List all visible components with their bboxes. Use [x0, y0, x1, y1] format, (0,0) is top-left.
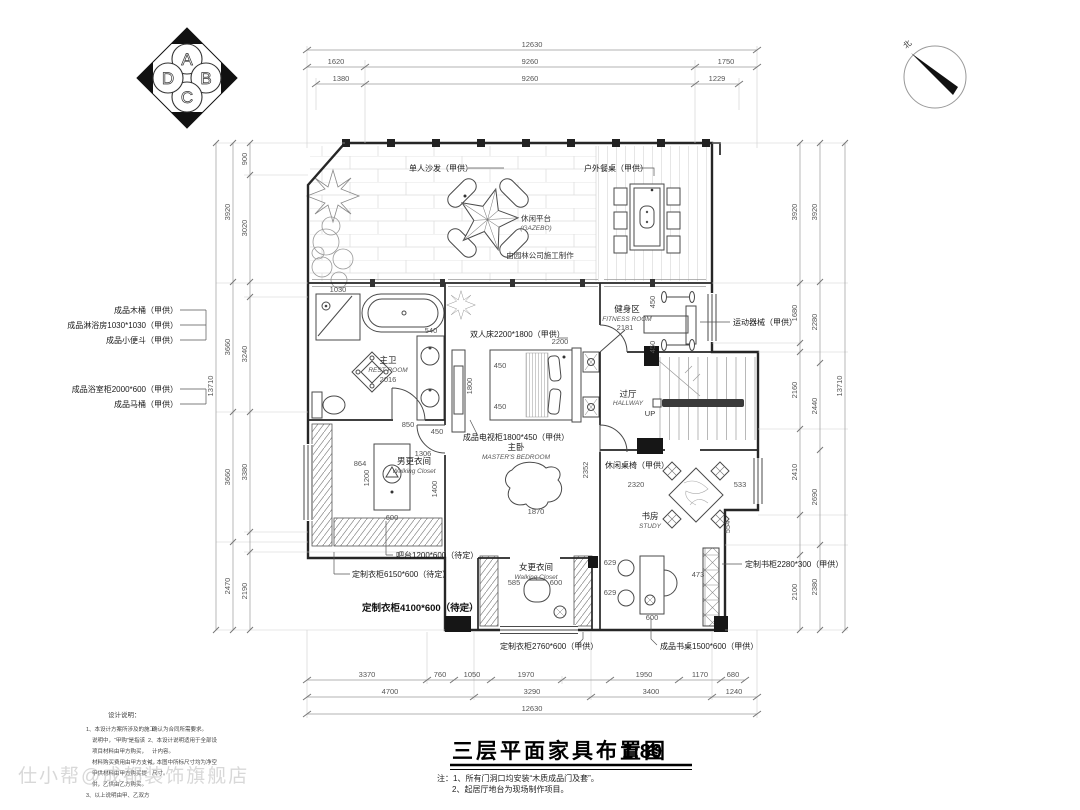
- dim-text: 629: [604, 588, 617, 597]
- dim-text: 3400: [643, 687, 660, 696]
- dim-text: 1200: [362, 470, 371, 487]
- desk-chair: [664, 570, 677, 596]
- bathroom-fixtures: [312, 294, 444, 420]
- dim-text: 3660: [223, 469, 232, 486]
- label-equipment: 运动器械（甲供）: [733, 317, 797, 327]
- dim-text: 864: [354, 459, 367, 468]
- dim-text: 3370: [359, 670, 376, 679]
- room-closet-f-en: Walking Closet: [514, 574, 558, 581]
- dim-text: 2100: [790, 584, 799, 601]
- logo-letter-d: D: [162, 69, 174, 88]
- dim-text: 3290: [524, 687, 541, 696]
- dim-text: 2160: [790, 382, 799, 399]
- room-closet-f: 女更衣间: [519, 562, 553, 572]
- design-notes-line: 3、以上说明由甲、乙双方: [86, 791, 150, 799]
- callout-shower: 成品淋浴房1030*1030（甲供）: [67, 320, 178, 330]
- dim-text: 1970: [518, 670, 535, 679]
- callout-urinal: 成品小便斗（甲供）: [106, 335, 178, 345]
- dim-text: 1620: [328, 57, 345, 66]
- callout-vanity: 成品浴室柜2000*600（甲供）: [72, 384, 178, 394]
- dim-text: 13710: [206, 376, 215, 397]
- drawing-note-2: 2、起居厅地台为现场制作项目。: [452, 784, 568, 794]
- dim-text: 2690: [810, 489, 819, 506]
- dim-text: 450: [494, 361, 507, 370]
- stair-handrail: [662, 399, 744, 407]
- dim-text: 1050: [464, 670, 481, 679]
- dim-text: 450: [431, 427, 444, 436]
- design-notes-line: 计内容。: [152, 747, 174, 755]
- dim-text: 1870: [528, 507, 545, 516]
- dim-text: 1800: [465, 378, 474, 395]
- compass-north-label: 北: [902, 38, 914, 50]
- dim-text: 629: [604, 558, 617, 567]
- dim-text: 850: [402, 420, 415, 429]
- dim-text: 12630: [522, 40, 543, 49]
- room-bath-en: REST ROOM: [368, 367, 408, 374]
- dim-text: 600: [386, 513, 399, 522]
- dim-text: 2380: [810, 579, 819, 596]
- callout-wood-tub: 成品木桶（甲供）: [114, 305, 178, 315]
- label-bed: 双人床2200*1800（甲供）: [470, 329, 565, 339]
- drawing-scale: 1:80: [622, 741, 662, 763]
- label-up: UP: [645, 409, 655, 418]
- dim-text: 13710: [835, 376, 844, 397]
- room-master: 主卧: [507, 442, 525, 452]
- dressing-chair: [524, 578, 550, 602]
- dim-text: 760: [434, 670, 447, 679]
- dim-text: 2280: [810, 314, 819, 331]
- logo-letter-c: C: [181, 88, 193, 107]
- label-leisure-set: 休闲桌椅（甲供）: [605, 460, 669, 470]
- dim-text: 1229: [709, 74, 726, 83]
- dim-text: 2320: [628, 480, 645, 489]
- dim-text: 2016: [380, 375, 397, 384]
- dim-text: 3240: [240, 346, 249, 363]
- stool: [618, 560, 634, 576]
- callout-toilet: 成品马桶（甲供）: [114, 399, 178, 409]
- dim-text: 450: [648, 296, 657, 309]
- dim-text: 3920: [810, 204, 819, 221]
- dim-text: 2440: [810, 398, 819, 415]
- design-notes-line: 1、本设计方案所涉及的施工: [86, 725, 156, 733]
- chaise-lounge: [506, 462, 562, 509]
- room-study-en: STUDY: [639, 523, 662, 530]
- dim-text: 3660: [223, 339, 232, 356]
- dim-text: 450: [648, 341, 657, 354]
- design-notes-title: 设计说明：: [108, 710, 141, 719]
- room-gazebo: 休闲平台: [521, 213, 551, 223]
- staircase: [653, 357, 755, 440]
- design-notes-line: 确认为合同所需要求。: [152, 725, 207, 733]
- dim-text: 680: [727, 670, 740, 679]
- bookcase: [703, 548, 719, 626]
- dim-text: 3020: [240, 220, 249, 237]
- callout-wardrobe-6150: 定制衣柜6150*600（待定）: [352, 569, 450, 579]
- callout-wardrobe-2760: 定制衣柜2760*600（甲供）: [500, 641, 598, 651]
- label-landscape-note: 由园林公司施工制作: [506, 250, 574, 260]
- label-sofa: 单人沙发（甲供）: [409, 163, 473, 173]
- dim-text: 1950: [636, 670, 653, 679]
- callout-wardrobe-4100: 定制衣柜4100*600（待定）: [361, 602, 479, 614]
- room-hall: 过厅: [619, 389, 637, 399]
- room-study: 书房: [641, 511, 658, 521]
- dim-text: 1380: [333, 74, 350, 83]
- dim-text: 9260: [522, 57, 539, 66]
- watermark: 仕小帮@成都装饰旗舰店: [18, 765, 249, 787]
- dim-text: 1750: [718, 57, 735, 66]
- firm-logo: A B C D: [137, 28, 237, 128]
- callout-bar: 吧台1200*600（待定）: [396, 550, 478, 560]
- room-bath: 主卫: [379, 355, 397, 365]
- wardrobe: [312, 424, 332, 546]
- label-outdoor-table: 户外餐桌（甲供）: [584, 163, 648, 173]
- logo-letter-a: A: [181, 50, 193, 69]
- dim-text: 554: [723, 521, 732, 534]
- dim-text: 3920: [790, 204, 799, 221]
- leisure-table: [669, 468, 723, 522]
- dim-text: 3920: [223, 204, 232, 221]
- dim-text: 473: [692, 570, 705, 579]
- floor-plan-sheet: 12630 1620 9260 1750 1380 9260 1229 3370…: [0, 0, 1080, 810]
- callout-bookcase: 定制书柜2280*300（甲供）: [745, 559, 843, 569]
- floor-plan-drawing: 12630 1620 9260 1750 1380 9260 1229 3370…: [0, 0, 1080, 810]
- dim-text: 9260: [522, 74, 539, 83]
- design-notes-line: 项目材料由甲方购买，: [92, 747, 147, 755]
- dim-text: 1400: [430, 481, 439, 498]
- drawing-note-1: 注：1、所有门洞口均安装“木质成品门及套”。: [437, 773, 599, 783]
- dim-text: 1170: [692, 670, 708, 679]
- title-block: 三层平面家具布置图 1:80 注：1、所有门洞口均安装“木质成品门及套”。 2、…: [437, 739, 692, 794]
- dim-text: 2470: [223, 578, 232, 595]
- wardrobe: [334, 518, 442, 546]
- room-closet-m-en: Walking Closet: [392, 468, 436, 475]
- stool: [618, 590, 634, 606]
- design-notes-line: 4、本图中所标尺寸均为净空: [148, 758, 218, 766]
- design-notes-line: 说明中，“甲购”是指该: [92, 736, 146, 744]
- dim-text: 2190: [240, 583, 249, 600]
- dim-text: 3380: [240, 464, 249, 481]
- desk: [640, 556, 664, 614]
- dim-text: 1030: [330, 285, 347, 294]
- room-gazebo-en: (GAZEBO): [520, 225, 551, 232]
- label-tv-cabinet: 成品电视柜1800*450（甲供）: [463, 432, 569, 442]
- toilet: [312, 392, 322, 418]
- compass-needle: [911, 53, 958, 95]
- dim-text: 533: [734, 480, 747, 489]
- dim-text: 1240: [726, 687, 743, 696]
- dim-text: 540: [425, 326, 438, 335]
- outdoor-dining-set: [614, 184, 680, 253]
- dim-text: 600: [646, 613, 659, 622]
- room-fitness-en: FITNESS ROOM: [602, 316, 652, 323]
- callout-desk: 成品书桌1500*600（甲供）: [660, 641, 758, 651]
- room-fitness: 健身区: [614, 304, 640, 314]
- dim-text: 2352: [581, 462, 590, 479]
- dim-text: 900: [240, 153, 249, 166]
- dim-text: 12630: [522, 704, 543, 713]
- room-master-en: MASTER'S BEDROOM: [482, 454, 551, 461]
- dim-text: 450: [494, 402, 507, 411]
- wardrobe: [480, 556, 498, 626]
- north-compass: 北: [902, 38, 966, 108]
- logo-letter-b: B: [200, 69, 211, 88]
- dim-text: 4700: [382, 687, 399, 696]
- design-notes-line: 2、本设计说明适用于全部设: [148, 736, 218, 744]
- dim-text: 2410: [790, 464, 799, 481]
- room-closet-m: 男更衣间: [397, 456, 431, 466]
- room-hall-en: HALLWAY: [613, 400, 644, 407]
- dim-text: 2181: [617, 323, 634, 332]
